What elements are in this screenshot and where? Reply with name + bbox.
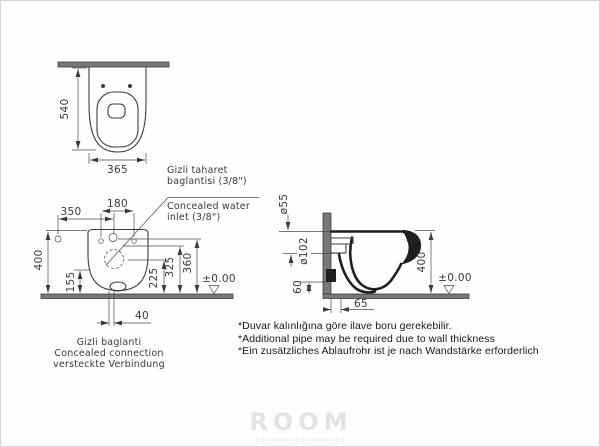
dim-325-label: 325 xyxy=(164,257,176,278)
dim-40-label: 40 xyxy=(135,310,149,322)
connection-label: Gizli baglanti Concealed connection vers… xyxy=(34,337,184,370)
toilet-rim-top xyxy=(97,92,138,147)
top-view-drawing: 540 365 xyxy=(58,62,169,176)
note-english: *Additional pipe may be required due to … xyxy=(238,333,539,346)
watermark-brand: ROOM xyxy=(249,408,352,436)
bolt-hole-left xyxy=(99,239,104,244)
drawing-canvas: 540 365 350 180 400 155 xyxy=(1,1,600,447)
dim-365-label: 365 xyxy=(107,164,128,176)
connection-label-en: Concealed connection xyxy=(34,348,184,359)
note-german: *Ein zusätzliches Ablaufrohr ist je nach… xyxy=(238,345,539,358)
inlet-hole-front xyxy=(109,234,117,242)
fixing-hole-right xyxy=(128,84,132,88)
inlet-label-turkish: Gizli taharet baglantisi (3/8") xyxy=(167,165,267,187)
watermark: ROOM xyxy=(239,409,363,442)
bolt-hole-right xyxy=(132,239,137,244)
connection-label-de: versteckte Verbindung xyxy=(34,359,184,370)
flush-opening xyxy=(108,104,125,118)
floor-section-front-view xyxy=(41,294,233,299)
floor-section-side-view xyxy=(323,294,469,299)
fixing-hole-left xyxy=(101,84,105,88)
dim-180-label: 180 xyxy=(107,198,128,210)
level-symbol-front xyxy=(209,286,219,294)
dia-55-label: ø55 xyxy=(278,194,290,215)
watermark-tagline-strip xyxy=(256,438,346,442)
side-view-drawing: ø55 ø102 60 400 ±0.00 65 xyxy=(278,194,472,313)
dia-102-label: ø102 xyxy=(298,237,310,265)
inlet-label-tr-line2: baglantisi (3/8") xyxy=(167,176,267,187)
wall-thickness-notes: *Duvar kalınlığına göre ilave boru gerek… xyxy=(238,320,539,358)
supply-point xyxy=(55,236,61,242)
bidet-nozzle xyxy=(110,282,126,291)
waste-outlet-dashed xyxy=(105,250,124,269)
dim-60-label: 60 xyxy=(292,280,304,294)
connection-label-tr: Gizli baglanti xyxy=(34,337,184,348)
technical-drawing-page: 540 365 350 180 400 155 xyxy=(0,0,600,447)
underside-curve xyxy=(339,254,375,292)
dim-155-label: 155 xyxy=(65,272,77,293)
dim-400-side-label: 400 xyxy=(416,252,428,273)
bowl-curve xyxy=(350,238,401,290)
note-turkish: *Duvar kalınlığına göre ilave boru gerek… xyxy=(238,320,539,333)
dim-540-label: 540 xyxy=(59,99,71,120)
waste-pipe-section xyxy=(326,269,336,282)
dim-360-label: 360 xyxy=(182,253,194,274)
dim-225-label: 225 xyxy=(148,268,160,289)
wall-section-top-view xyxy=(58,62,169,67)
inlet-label-en-line1: Concealed water xyxy=(167,201,267,212)
inlet-label-en-line2: inlet (3/8") xyxy=(167,212,267,223)
dim-65-label: 65 xyxy=(354,298,368,310)
inlet-label-tr-line1: Gizli taharet xyxy=(167,165,267,176)
floor-level-front-label: ±0.00 xyxy=(202,273,236,285)
inlet-label-english: Concealed water inlet (3/8") xyxy=(167,201,267,223)
level-symbol-side xyxy=(444,286,454,294)
dim-400-front-label: 400 xyxy=(33,250,45,271)
dim-350-label: 350 xyxy=(61,206,82,218)
floor-level-side-label: ±0.00 xyxy=(438,272,472,284)
